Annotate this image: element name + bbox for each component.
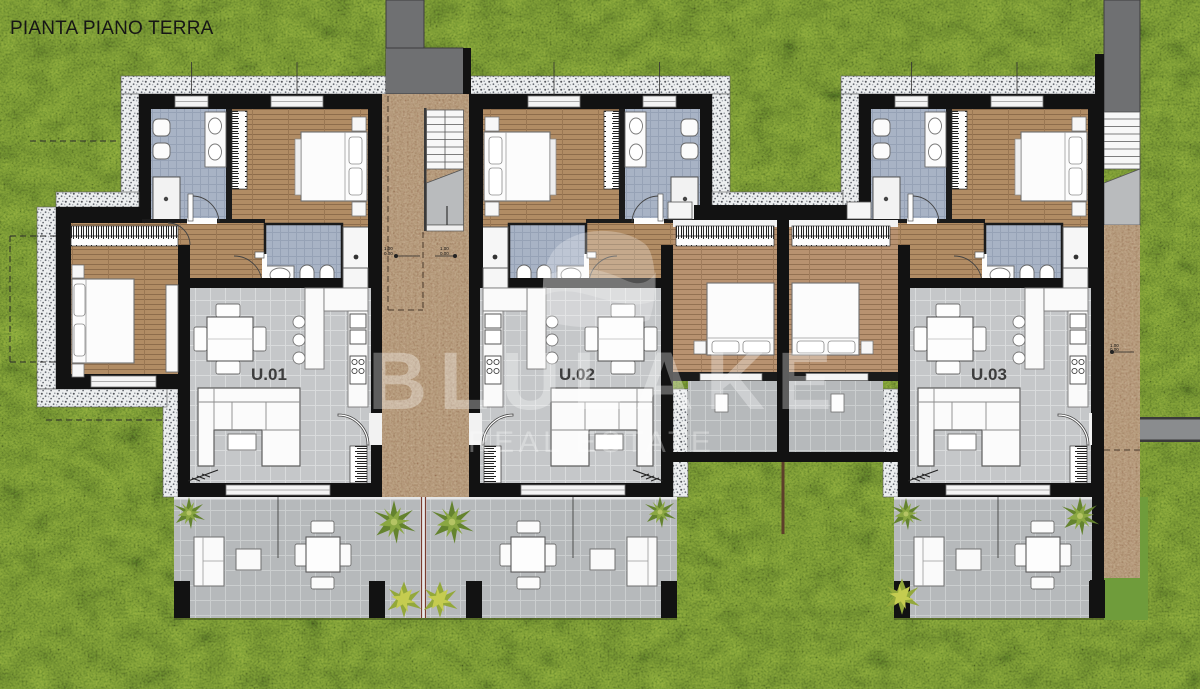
svg-text:U.03: U.03 bbox=[971, 365, 1007, 384]
svg-text:0.00: 0.00 bbox=[440, 251, 449, 256]
svg-text:REAL ESTATE: REAL ESTATE bbox=[468, 426, 715, 459]
svg-text:0.00: 0.00 bbox=[1110, 347, 1119, 352]
svg-text:PIANTA PIANO TERRA: PIANTA PIANO TERRA bbox=[10, 18, 214, 39]
svg-text:U.01: U.01 bbox=[251, 365, 287, 384]
svg-text:0.00: 0.00 bbox=[384, 251, 393, 256]
svg-text:BLULAKE: BLULAKE bbox=[368, 336, 844, 427]
